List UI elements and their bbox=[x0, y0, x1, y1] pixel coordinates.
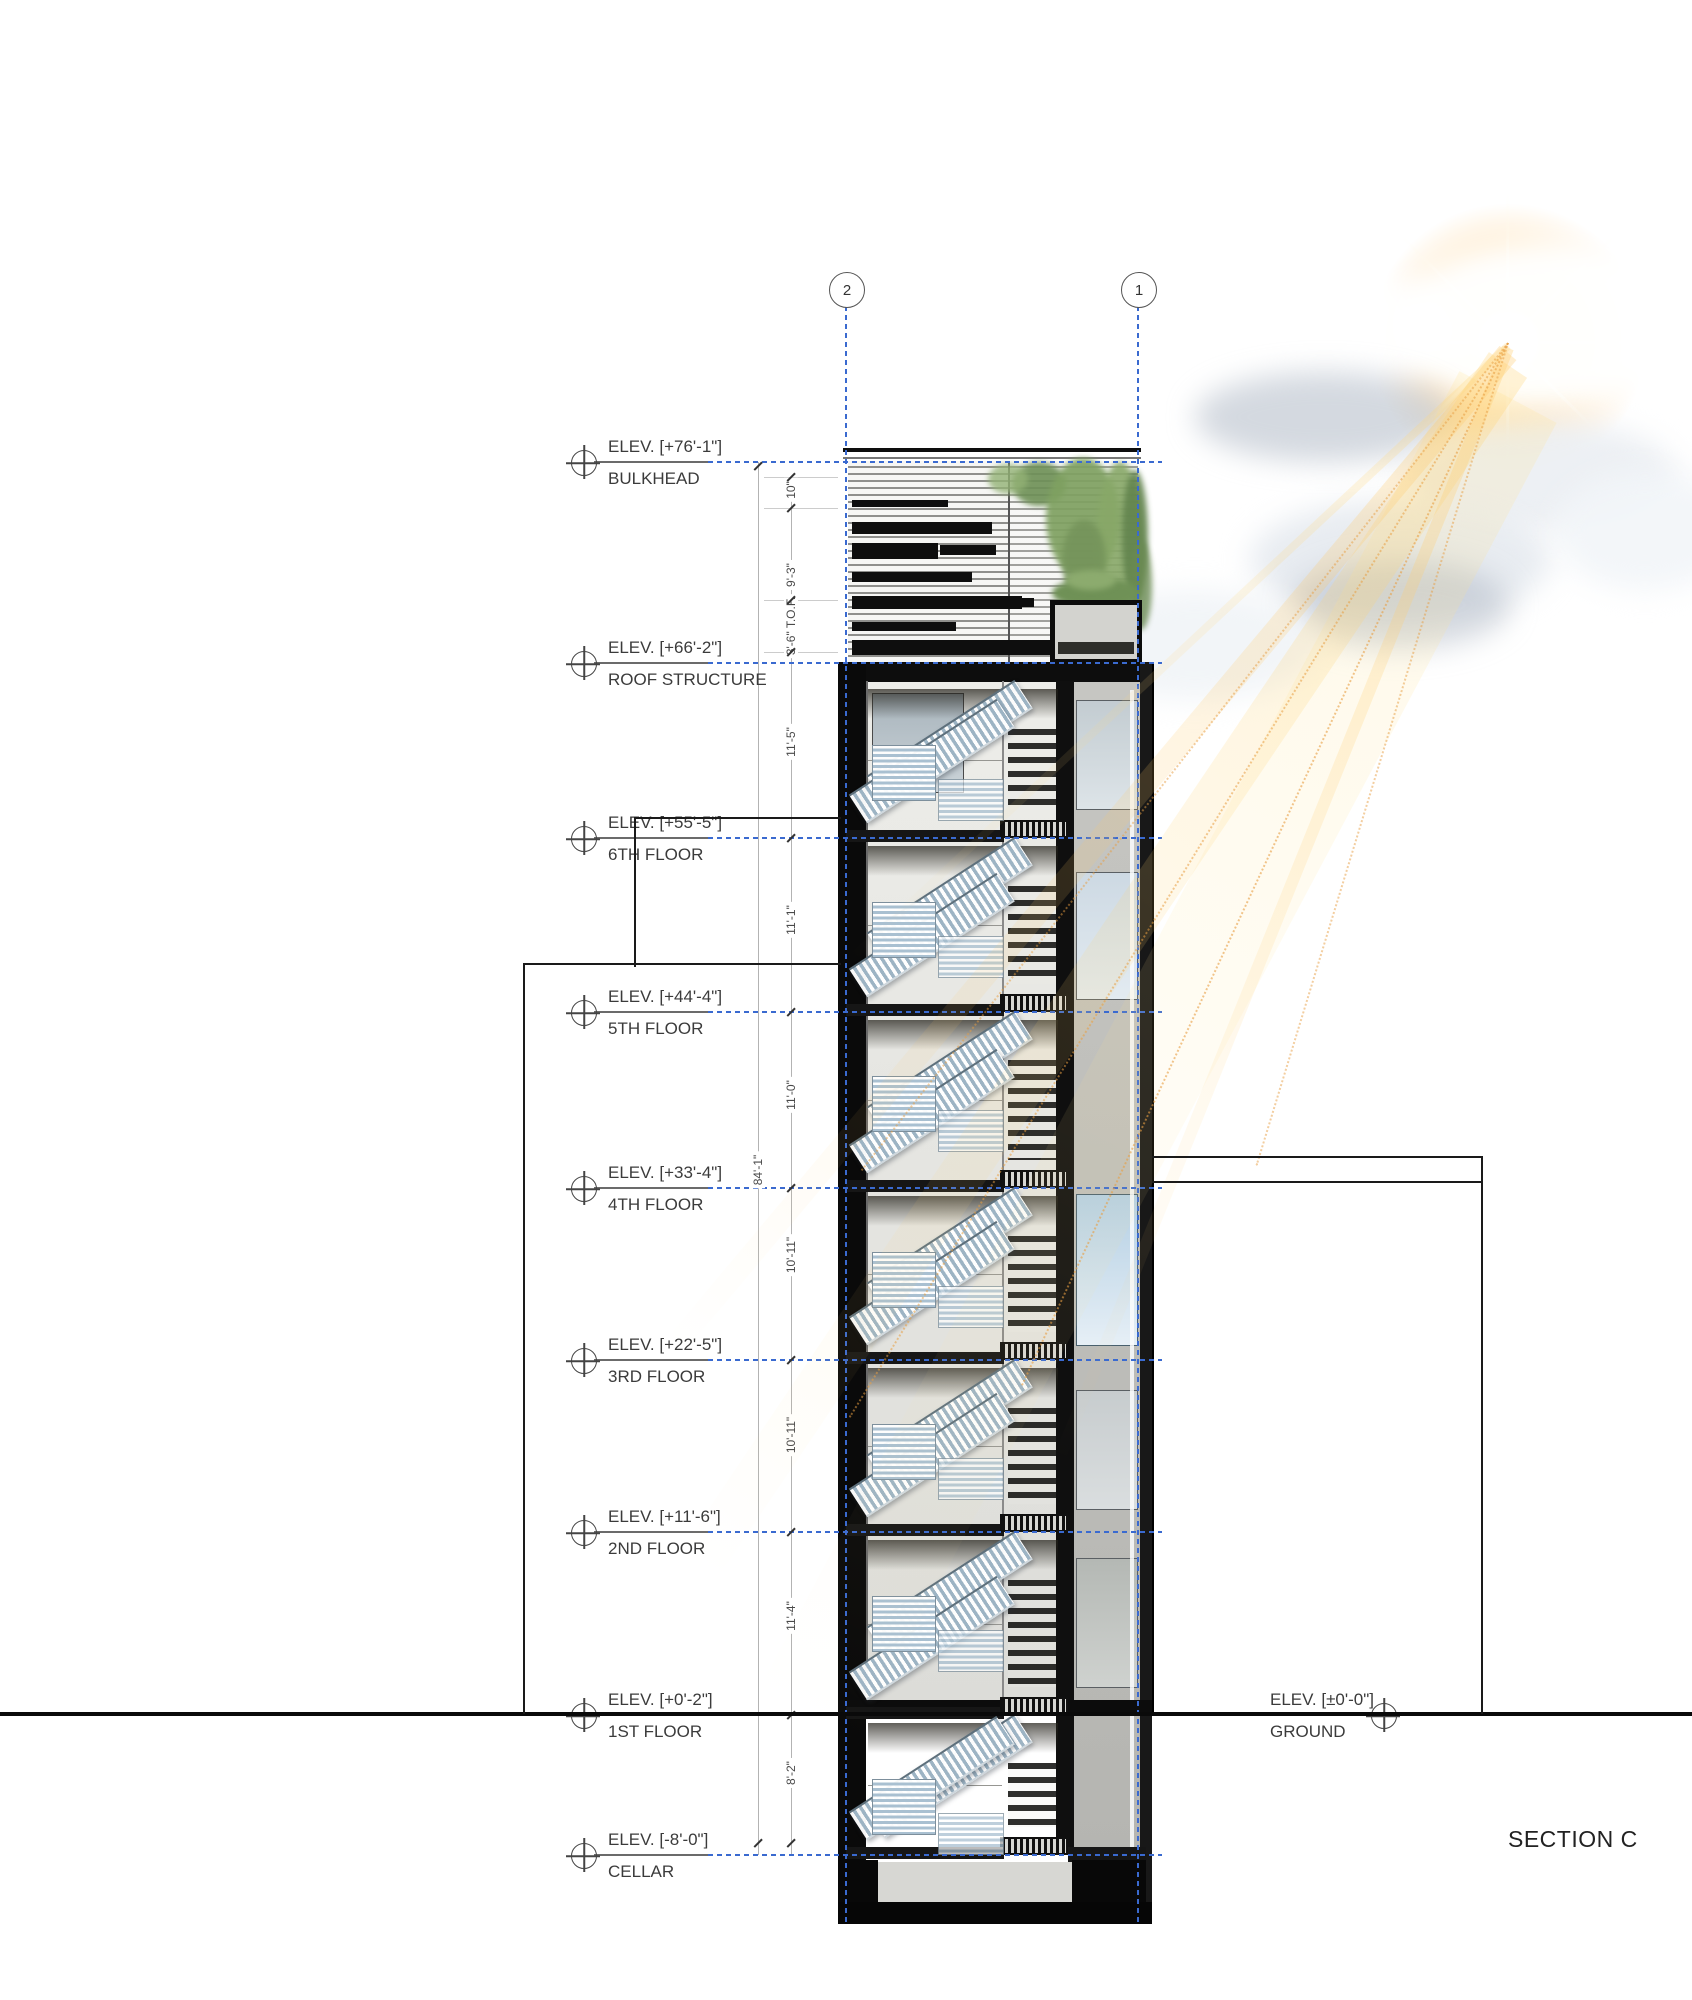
elevation-value: ELEV. [+55'-5"] bbox=[608, 813, 722, 833]
elevation-label: BULKHEAD bbox=[608, 469, 700, 489]
bulkhead-panel bbox=[852, 522, 992, 534]
grid-bubble: 2 bbox=[829, 272, 865, 308]
elevation-dashed-line bbox=[708, 837, 1162, 839]
shaft-glass-panel bbox=[1076, 872, 1138, 1000]
elevation-dashed-line bbox=[708, 1854, 1162, 1856]
elevation-marker-icon bbox=[571, 1843, 597, 1869]
left-wall bbox=[838, 662, 866, 1924]
stair-railing bbox=[938, 1110, 1004, 1152]
interior-shelving bbox=[1008, 1408, 1056, 1504]
elevation-line bbox=[594, 1531, 708, 1533]
cloud bbox=[1195, 372, 1455, 462]
right-neighbor-outline bbox=[1481, 1156, 1483, 1714]
elevation-value: ELEV. [±0'-0"] bbox=[1270, 1690, 1374, 1710]
dimension-label: 9'-3" bbox=[784, 560, 798, 590]
stair-railing bbox=[872, 1596, 936, 1652]
dimension-label: 10'-11" bbox=[784, 1234, 798, 1276]
dimension-label: 11'-5" bbox=[784, 724, 798, 760]
elevation-value: ELEV. [+22'-5"] bbox=[608, 1335, 722, 1355]
elevation-marker-icon bbox=[571, 1348, 597, 1374]
grid-bubble: 1 bbox=[1121, 272, 1157, 308]
elevation-value: ELEV. [+33'-4"] bbox=[608, 1163, 722, 1183]
bulkhead-panel bbox=[990, 598, 1034, 607]
floor-slab bbox=[846, 1004, 1004, 1016]
interior-shelving bbox=[1008, 886, 1056, 984]
left-neighbor-outline bbox=[634, 817, 636, 967]
dimension-extension-line bbox=[764, 508, 838, 509]
stair-railing bbox=[872, 1424, 936, 1480]
bulkhead-panel bbox=[852, 500, 948, 507]
interior-shelving bbox=[1008, 1580, 1056, 1687]
elevation-marker-icon bbox=[571, 1703, 597, 1729]
stair-railing bbox=[938, 1458, 1004, 1500]
elevation-label: 1ST FLOOR bbox=[608, 1722, 702, 1742]
cloud bbox=[1290, 560, 1510, 650]
right-neighbor-outline bbox=[1152, 1156, 1483, 1158]
stair-railing bbox=[938, 1286, 1004, 1328]
landing-slab bbox=[1000, 1342, 1068, 1360]
bulkhead-panel bbox=[852, 622, 956, 631]
elevation-value: ELEV. [-8'-0"] bbox=[608, 1830, 708, 1850]
bulkhead-louvers bbox=[848, 461, 1010, 662]
landing-slab bbox=[1000, 820, 1068, 838]
foundation-mat bbox=[838, 1902, 1152, 1924]
elevation-dashed-line bbox=[708, 461, 1162, 463]
shaft-wall bbox=[1056, 681, 1074, 1855]
stair-railing bbox=[938, 1630, 1004, 1672]
elevation-value: ELEV. [+66'-2"] bbox=[608, 638, 722, 658]
elevation-marker-icon bbox=[571, 1000, 597, 1026]
floor-dimension-line bbox=[791, 477, 792, 1855]
elevation-line bbox=[594, 837, 708, 839]
stair-railing bbox=[938, 1813, 1004, 1855]
dimension-extension-line bbox=[764, 600, 838, 601]
elevation-label: CELLAR bbox=[608, 1862, 674, 1882]
shaft-highlight bbox=[1130, 690, 1134, 1850]
dimension-extension-line bbox=[764, 652, 838, 653]
elevation-marker-icon bbox=[1371, 1703, 1397, 1729]
roof-planter bbox=[1050, 600, 1142, 664]
ground-line bbox=[0, 1712, 1692, 1716]
stair-railing bbox=[872, 1076, 936, 1132]
elevation-marker-icon bbox=[571, 1176, 597, 1202]
right-neighbor-outline bbox=[1152, 1181, 1483, 1183]
floor-slab bbox=[846, 1524, 1004, 1536]
bulkhead-panel bbox=[852, 543, 938, 559]
elevation-marker-icon bbox=[571, 1520, 597, 1546]
shaft-glass-panel bbox=[1076, 700, 1138, 810]
stair-railing bbox=[872, 1252, 936, 1308]
elevation-marker-icon bbox=[571, 651, 597, 677]
landing-slab bbox=[1000, 1514, 1068, 1532]
cloud bbox=[1390, 240, 1692, 410]
elevation-line bbox=[594, 1011, 708, 1013]
shaft-glass-panel bbox=[1076, 1194, 1138, 1346]
elevation-marker-icon bbox=[571, 450, 597, 476]
landing-slab bbox=[1000, 994, 1068, 1012]
elevation-line bbox=[594, 461, 708, 463]
dimension-label: 10" bbox=[784, 478, 798, 502]
stair-railing bbox=[872, 902, 936, 958]
bulkhead-panel bbox=[852, 640, 1052, 655]
stair-railing bbox=[872, 1779, 936, 1835]
elevation-line bbox=[594, 1854, 708, 1856]
planter-soil bbox=[1058, 642, 1134, 654]
bulkhead-panel bbox=[940, 545, 996, 555]
shaft-glass-panel bbox=[1076, 1390, 1138, 1510]
dimension-extension-line bbox=[764, 477, 838, 478]
elevation-dashed-line bbox=[708, 1531, 1162, 1533]
roof-vine bbox=[988, 464, 1028, 494]
drawing-canvas: SECTION C ELEV. [+76'-1"]BULKHEADELEV. [… bbox=[0, 0, 1692, 2000]
elevation-marker-icon bbox=[571, 826, 597, 852]
roof-slab bbox=[838, 662, 1152, 682]
dimension-label: 11'-1" bbox=[784, 902, 798, 938]
floor-slab bbox=[846, 1352, 1004, 1364]
section-title: SECTION C bbox=[1508, 1826, 1638, 1853]
foundation-soil bbox=[878, 1862, 1072, 1902]
dimension-label: 8'-2" bbox=[784, 1758, 798, 1788]
left-neighbor-outline bbox=[523, 963, 525, 1714]
bulkhead-panel bbox=[852, 572, 972, 582]
overall-dimension-label: 84'-1" bbox=[751, 1152, 765, 1189]
interior-shelving bbox=[1008, 1763, 1056, 1827]
elevation-label: 4TH FLOOR bbox=[608, 1195, 703, 1215]
grid-line bbox=[1137, 306, 1139, 1922]
bulkhead-top-frame bbox=[843, 448, 1141, 452]
floor-slab bbox=[846, 830, 1004, 842]
bulkhead-top-line bbox=[843, 457, 1141, 459]
elevation-label: 2ND FLOOR bbox=[608, 1539, 705, 1559]
elevation-label: 5TH FLOOR bbox=[608, 1019, 703, 1039]
stair-railing bbox=[938, 936, 1004, 978]
elevation-dashed-line bbox=[708, 1187, 1162, 1189]
stair-railing bbox=[872, 745, 936, 801]
elevation-dashed-line bbox=[708, 1359, 1162, 1361]
interior-shelving bbox=[1008, 729, 1056, 810]
elevation-value: ELEV. [+11'-6"] bbox=[608, 1507, 721, 1527]
elevation-label: ROOF STRUCTURE bbox=[608, 670, 767, 690]
floor-slab bbox=[846, 1180, 1004, 1192]
planter-plants bbox=[1066, 570, 1116, 590]
elevation-line bbox=[594, 662, 708, 664]
elevation-dashed-line bbox=[708, 1011, 1162, 1013]
landing-slab bbox=[1000, 1837, 1068, 1855]
dimension-label: 11'-4" bbox=[784, 1598, 798, 1634]
elevation-label: 3RD FLOOR bbox=[608, 1367, 705, 1387]
elevation-value: ELEV. [+0'-2"] bbox=[608, 1690, 713, 1710]
dimension-label: 11'-0" bbox=[784, 1077, 798, 1113]
left-neighbor-outline bbox=[523, 963, 841, 965]
elevation-value: ELEV. [+76'-1"] bbox=[608, 437, 722, 457]
elevation-value: ELEV. [+44'-4"] bbox=[608, 987, 722, 1007]
dimension-label: 10'-11" bbox=[784, 1414, 798, 1456]
elevation-line bbox=[594, 1359, 708, 1361]
landing-slab bbox=[1000, 1170, 1068, 1188]
interior-shelving bbox=[1008, 1060, 1056, 1160]
grid-line bbox=[845, 306, 847, 1922]
stair-railing bbox=[938, 779, 1004, 821]
elevation-label: GROUND bbox=[1270, 1722, 1346, 1742]
left-neighbor-outline bbox=[634, 817, 841, 819]
elevation-dashed-line bbox=[708, 662, 1162, 664]
right-wall bbox=[1140, 662, 1152, 1924]
elevation-line bbox=[594, 1187, 708, 1189]
shaft-glass-panel bbox=[1076, 1558, 1138, 1688]
elevation-label: 6TH FLOOR bbox=[608, 845, 703, 865]
interior-shelving bbox=[1008, 1236, 1056, 1332]
